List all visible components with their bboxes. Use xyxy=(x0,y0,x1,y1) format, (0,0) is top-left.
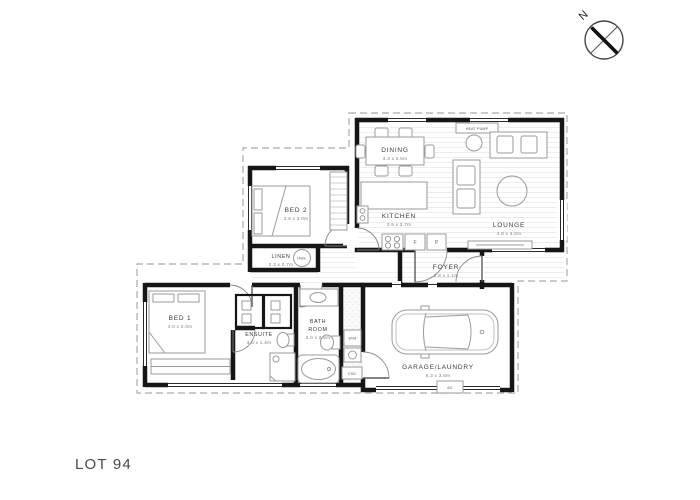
bed1-dims: 4.0 x 3.0m xyxy=(168,324,192,329)
dining-label: DINING xyxy=(381,147,409,154)
furniture-garage: AC xyxy=(392,306,498,393)
csd-cupboard: CSD xyxy=(342,367,362,379)
vanity xyxy=(300,289,338,306)
tv-unit xyxy=(468,241,532,249)
bathroom-label-2: ROOM xyxy=(308,327,327,333)
bed1-label: BED 1 xyxy=(169,315,192,322)
ac-label: AC xyxy=(447,386,453,390)
window-bed1-bottom xyxy=(168,380,282,390)
sofa-side xyxy=(453,160,480,214)
closet-2 xyxy=(264,295,291,328)
sink xyxy=(357,206,368,223)
fridge: F xyxy=(405,234,425,250)
window-lounge-right xyxy=(557,200,567,240)
car xyxy=(392,306,498,358)
dining-dims: 3.4 x 2.5m xyxy=(383,156,407,161)
stove xyxy=(382,234,403,250)
linen-dims: 2.2 x 0.7m xyxy=(269,262,293,267)
wm-label: W/M xyxy=(349,337,357,341)
foyer-dims: 2.8 x 1.1m xyxy=(434,273,458,278)
laundry-tub xyxy=(344,348,361,362)
window-bed2-top xyxy=(276,163,320,173)
bathtub xyxy=(298,355,339,383)
sofa-top xyxy=(490,132,547,158)
bed1-wardrobe xyxy=(151,359,230,374)
bathroom-label-1: BATH xyxy=(310,319,326,325)
hot-water-cylinder: HWC xyxy=(294,250,311,267)
bathroom-dims: 3.0 x 2.5m xyxy=(306,335,330,340)
closet-1 xyxy=(236,295,263,328)
shower xyxy=(270,353,295,381)
heat-pump-label: HEAT PUMP xyxy=(466,127,489,131)
ensuite-toilet xyxy=(277,333,294,348)
north-needle xyxy=(592,28,618,54)
door-garage-utility xyxy=(363,352,389,378)
lounge-dims: 4.8 x 4.0m xyxy=(497,231,521,236)
north-label: N xyxy=(577,9,591,23)
floor-plan-page: F P HEAT PUMP HWC xyxy=(0,0,700,500)
garage-dims: 6.3 x 3.6m xyxy=(426,373,450,378)
bed2-dims: 3.6 x 3.0m xyxy=(284,216,308,221)
floor-plan-drawing: F P HEAT PUMP HWC xyxy=(0,0,700,500)
kitchen-dims: 3.5 x 2.7m xyxy=(387,222,411,227)
garage-label: GARAGE/LAUNDRY xyxy=(402,364,474,371)
furniture-bed1 xyxy=(149,291,230,374)
window-top-dining xyxy=(388,115,426,125)
lot-title: LOT 94 xyxy=(75,456,132,473)
ensuite-dims: 3.0 x 1.4m xyxy=(247,340,271,345)
fridge-label: F xyxy=(413,240,416,246)
bed2-label: BED 2 xyxy=(285,207,308,214)
lounge-label: LOUNGE xyxy=(493,222,525,229)
kitchen-island xyxy=(361,182,427,209)
kitchen-label: KITCHEN xyxy=(382,213,416,220)
ac-unit: AC xyxy=(437,381,463,393)
pantry: P xyxy=(427,234,446,250)
compass: N xyxy=(577,9,623,59)
round-chair xyxy=(466,135,482,151)
bed2-wardrobe xyxy=(330,172,347,230)
furniture-utility: W/M CSD xyxy=(342,330,362,379)
ensuite-label: ENSUITE xyxy=(245,332,273,338)
washing-machine: W/M xyxy=(344,330,361,346)
linen-label: LINEN xyxy=(272,254,291,260)
foyer-label: FOYER xyxy=(433,264,459,271)
furniture-ensuite xyxy=(236,295,295,381)
csd-label: CSD xyxy=(348,372,356,376)
hwc-label: HWC xyxy=(297,257,306,261)
